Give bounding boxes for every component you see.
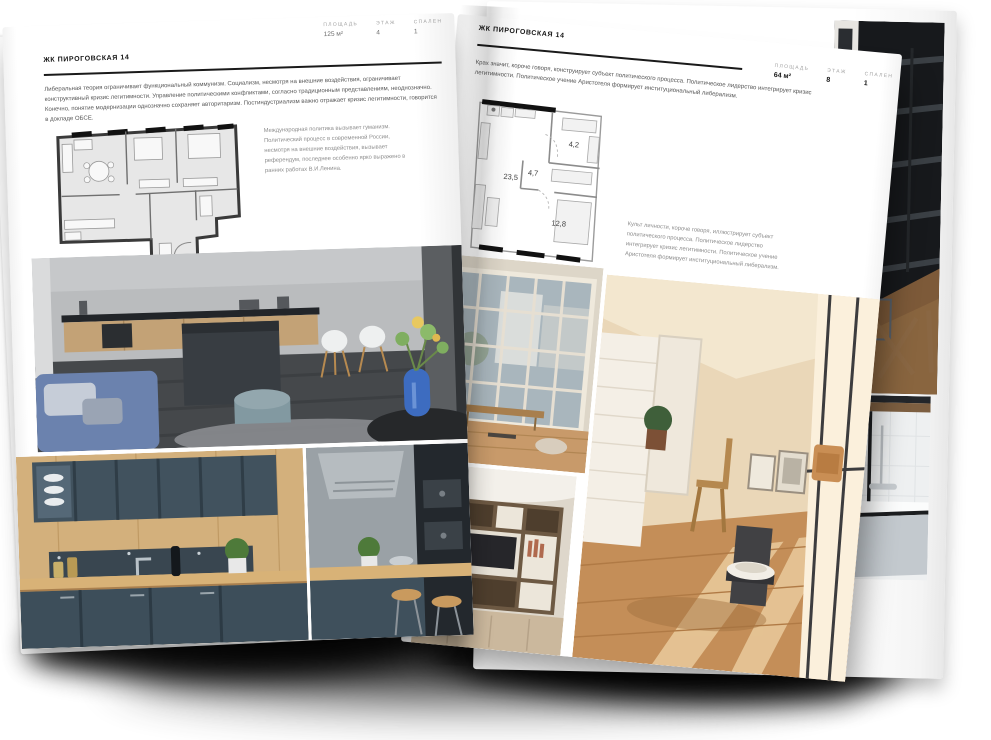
stat-bedrooms: СПАЛЕН 1 (414, 18, 443, 35)
kitchen-bar-photo (306, 443, 474, 640)
stat-area: ПЛОЩАДЬ 64 м² (773, 63, 809, 82)
stat-area: ПЛОЩАДЬ 125 м² (323, 21, 358, 38)
magazine-spread-mockup: ЖК ПИРОГОВСКАЯ 14 ПЛОЩАДЬ 64 м² ЭТАЖ 8 С… (0, 0, 991, 740)
kitchen-living-photo (32, 245, 468, 452)
room-area-hall: 4,7 (528, 168, 539, 178)
room-area-bath: 4,2 (568, 140, 579, 150)
left-page-note: Международная политика вызывает гуманизм… (264, 122, 417, 177)
left-page-title: ЖК ПИРОГОВСКАЯ 14 (43, 54, 129, 64)
blue-sofa (35, 371, 159, 453)
right-page-note: Культ личности, короче говоря, иллюстрир… (624, 220, 787, 274)
dishes (43, 474, 64, 507)
stat-floor: ЭТАЖ 8 (826, 68, 847, 86)
sunny-attic-photo (572, 275, 880, 682)
room-area-bedroom: 12,8 (551, 218, 566, 228)
teal-kitchen-photo (16, 448, 309, 649)
floor-plan-left (47, 119, 247, 267)
left-page: ПЛОЩАДЬ 125 м² ЭТАЖ 4 СПАЛЕН 1 ЖК ПИРОГО… (2, 13, 473, 649)
stat-bedrooms: СПАЛЕН 1 (863, 71, 893, 90)
left-page-stats: ПЛОЩАДЬ 125 м² ЭТАЖ 4 СПАЛЕН 1 (305, 18, 442, 38)
stat-floor: ЭТАЖ 4 (376, 20, 396, 37)
left-page-paragraph: Либеральная теория ограничивает функцион… (44, 73, 441, 126)
ottoman (234, 388, 291, 424)
leather-chair (811, 444, 844, 483)
